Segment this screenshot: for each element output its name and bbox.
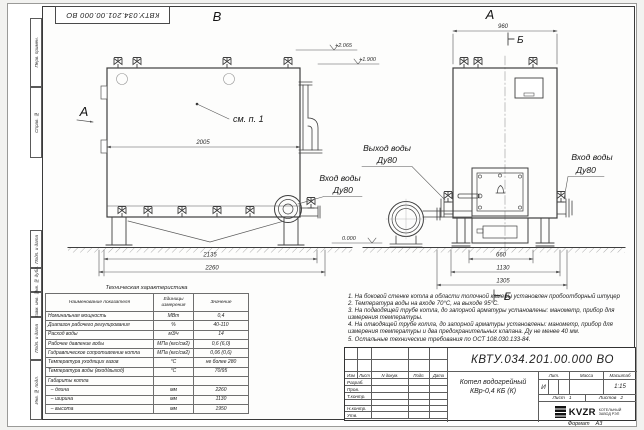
drain-valve: [246, 207, 254, 218]
param-units: %: [154, 321, 194, 330]
view-a-direction-arrow: [77, 120, 93, 122]
tb-cell: [372, 393, 409, 400]
blower-fan: [386, 199, 426, 247]
kvzr-coil-icon: [555, 406, 566, 418]
format-label: Формат: [568, 421, 590, 427]
tb-cell: [430, 412, 448, 419]
safety-valve: [460, 58, 468, 69]
mass-value: [569, 380, 603, 395]
outlet-leader: [362, 167, 445, 201]
side-tab-lower: [101, 140, 107, 153]
param-name: Диапазон рабочего регулирования: [46, 321, 154, 330]
product-title-line1: Котел водогрейный: [460, 379, 527, 388]
sheets-cell: Листов 2: [585, 395, 636, 402]
note-item: 4. На отводящей трубе котла, до запорной…: [348, 322, 635, 336]
ash-hopper-line: [128, 221, 284, 242]
param-units: мм: [154, 395, 194, 404]
inlet-b-label-line2: Ду80: [332, 185, 353, 195]
tb-cell: [372, 360, 409, 372]
furnace-door: [458, 168, 528, 216]
note-item: 3. На подводящей трубе котла, до запорно…: [348, 308, 635, 322]
param-name: Гидравлическое сопротивление котла: [46, 349, 154, 358]
dim-overall-width: 1305: [496, 279, 510, 285]
lifting-lug-left: [117, 74, 128, 85]
tb-cell: [409, 379, 430, 386]
tech-header-row: Наименование показателя Единицы измерени…: [46, 294, 249, 312]
lit-header: Лит.: [538, 372, 569, 380]
tb-cell: [558, 380, 569, 395]
tech-header-units: Единицы измерения: [154, 294, 194, 312]
view-b-side-view: В А: [68, 9, 382, 276]
param-name: – высота: [46, 404, 154, 413]
param-units: МПа (кгс/см2): [154, 349, 194, 358]
ground-hatch-right: [363, 248, 625, 253]
tb-cell: [430, 348, 448, 360]
param-units: м3/ч: [154, 330, 194, 339]
tb-cell: [345, 348, 358, 360]
tb-cell: [430, 386, 448, 393]
inlet-label-line2: Ду80: [575, 165, 596, 175]
param-value: 2260: [194, 386, 249, 395]
tb-cell: [409, 386, 430, 393]
note-item: 5. Остальные технические требования по О…: [348, 337, 635, 344]
control-panel: [515, 78, 543, 98]
inlet-label-line1: Вход воды: [571, 152, 613, 162]
param-name: Номинальная мощность: [46, 312, 154, 321]
dim-front-width: 960: [498, 24, 509, 30]
param-name: Температура уходящих газов: [46, 358, 154, 367]
dim-overall-length: 2260: [204, 266, 219, 272]
outlet-label-line1: Выход воды: [363, 143, 412, 153]
tech-table-title: Техническая характеристика: [45, 285, 248, 291]
inlet-stub-valve: [557, 192, 565, 203]
table-row: Температура уходящих газов°Сне более 280: [46, 358, 249, 367]
table-row: – ширинамм1130: [46, 395, 249, 404]
tb-cell: [409, 348, 430, 360]
param-units: °С: [154, 358, 194, 367]
tb-cell: [430, 379, 448, 386]
tb-col-list: Лист: [358, 372, 372, 379]
company-logo-cell: KVZR КОТЕЛЬНЫЙ ЗАВОД РЭП: [538, 402, 637, 422]
param-units: МПа (кгс/см2): [154, 339, 194, 348]
param-name: – длина: [46, 386, 154, 395]
tb-cell: [409, 393, 430, 400]
tb-cell: [548, 380, 558, 395]
tb-cell: [372, 386, 409, 393]
param-units: мм: [154, 386, 194, 395]
drawing-sheet: КВТУ.034.201.00.000 ВО Перв. примен. Спр…: [0, 0, 644, 430]
param-value: 70/95: [194, 367, 249, 376]
note-item: 1. На боковой стенке котла в области топ…: [348, 294, 635, 301]
tb-cell: [358, 360, 372, 372]
base-ash-box: [472, 218, 528, 243]
drain-valve: [178, 207, 186, 218]
company-name: КОТЕЛЬНЫЙ ЗАВОД РЭП: [599, 408, 622, 416]
tech-header-value: Значение: [194, 294, 249, 312]
dim-support-span: 2135: [202, 253, 217, 259]
param-value: не более 280: [194, 358, 249, 367]
tb-cell: [372, 379, 409, 386]
top-valve: [284, 58, 292, 69]
tb-cell: [345, 360, 358, 372]
tb-sig-tkontr: Т.контр.: [345, 393, 372, 400]
support-legs: [106, 217, 304, 248]
tb-cell: [430, 360, 448, 372]
tb-sig-prov: Пров.: [345, 386, 372, 393]
table-row: Расход водым3/ч14: [46, 330, 249, 339]
param-units: °С: [154, 367, 194, 376]
product-title-line2: КВр-0,4 КБ (К): [470, 388, 516, 397]
section-mark-letter: Б: [517, 35, 524, 46]
param-value: 1950: [194, 404, 249, 413]
view-a-direction-letter: А: [79, 104, 89, 119]
tb-col-podp: Подп.: [409, 372, 430, 379]
kvzr-logo-text: KVZR: [569, 407, 596, 418]
top-valve: [114, 58, 122, 69]
tb-cell: [409, 360, 430, 372]
format-label-row: Формат А3: [540, 421, 630, 427]
callout-leader: [197, 104, 229, 119]
side-tab-upper: [101, 86, 107, 99]
title-block-change-grid: Изм Лист N докум. Подп. Дата Разраб. Про…: [345, 348, 448, 419]
drain-valve: [144, 207, 152, 218]
tech-header-name: Наименование показателя: [46, 294, 154, 312]
table-row: – высотамм1950: [46, 404, 249, 413]
product-title: Котел водогрейный КВр-0,4 КБ (К): [447, 372, 538, 422]
param-units: мм: [154, 404, 194, 413]
rear-pipe-elbow: [299, 82, 322, 153]
top-valve: [223, 58, 231, 69]
param-name: Рабочее давление воды: [46, 339, 154, 348]
inlet-b-label-line1: Вход воды: [319, 173, 361, 183]
outlet-stub-valve: [444, 192, 452, 203]
tb-cell: [358, 348, 372, 360]
lifting-lug-right: [224, 74, 235, 85]
param-value: 0,06 (0,6): [194, 349, 249, 358]
sheet-label: Лист: [552, 396, 564, 401]
document-number: КВТУ.034.201.00.000 ВО: [447, 348, 637, 372]
callout-text: см. п. 1: [233, 114, 264, 124]
table-row: Гидравлическое сопротивление котлаМПа (к…: [46, 349, 249, 358]
tb-col-docnum: N докум.: [372, 372, 409, 379]
top-valve: [529, 58, 537, 69]
sheets-label: Листов: [599, 396, 616, 401]
scale-value: 1:15: [603, 380, 636, 395]
tb-cell: [372, 348, 409, 360]
view-a-front-view: А Б: [362, 7, 625, 303]
stub-valve: [307, 198, 315, 209]
tech-table: Наименование показателя Единицы измерени…: [45, 293, 249, 414]
tb-sig-utv: Утв.: [345, 412, 372, 419]
drain-valve: [118, 207, 126, 218]
title-block: Изм Лист N докум. Подп. Дата Разраб. Про…: [344, 347, 636, 421]
dim-mid-width: 1130: [497, 266, 511, 272]
table-row: – длинамм2260: [46, 386, 249, 395]
tb-col-izm: Изм: [345, 372, 358, 379]
tb-cell: [409, 412, 430, 419]
format-value: А3: [596, 421, 603, 427]
lit-value: И: [538, 380, 548, 395]
mass-header: Масса: [569, 372, 603, 380]
technical-notes: 1. На боковой стенке котла в области топ…: [348, 294, 635, 344]
elevation-mid: +1.900: [359, 57, 377, 63]
param-units: [154, 377, 194, 386]
elevation-top: +2.065: [335, 43, 353, 49]
table-row: Диапазон рабочего регулирования%40-110: [46, 321, 249, 330]
param-name: Расход воды: [46, 330, 154, 339]
drain-valve: [213, 207, 221, 218]
param-units: МВт: [154, 312, 194, 321]
param-value: 14: [194, 330, 249, 339]
sheets-value: 2: [620, 396, 623, 401]
elevation-zero: 0.000: [342, 236, 357, 242]
param-name: Температура воды (вход/выход): [46, 367, 154, 376]
param-name: – ширина: [46, 395, 154, 404]
sheet-cell: Лист 1: [538, 395, 585, 402]
scale-header: Масштаб: [603, 372, 636, 380]
tb-col-data: Дата: [430, 372, 448, 379]
company-name-line2: ЗАВОД РЭП: [599, 412, 620, 416]
table-row: Номинальная мощностьМВт0,4: [46, 312, 249, 321]
table-row: Габариты котла: [46, 377, 249, 386]
outlet-label-line2: Ду80: [376, 155, 397, 165]
front-legs: [452, 218, 554, 246]
param-value: 0,6 (6,0): [194, 339, 249, 348]
sheet-value: 1: [569, 396, 572, 401]
inlet-flange: [275, 196, 302, 223]
table-row: Температура воды (вход/выход)°С70/95: [46, 367, 249, 376]
table-row: Рабочее давление водыМПа (кгс/см2)0,6 (6…: [46, 339, 249, 348]
section-mark-line: [508, 33, 514, 45]
inlet-leader: [564, 177, 604, 200]
param-value: 40-110: [194, 321, 249, 330]
param-name: Габариты котла: [46, 377, 154, 386]
param-value: 1130: [194, 395, 249, 404]
dim-body-length: 2005: [195, 140, 210, 146]
tb-sig-razrab: Разраб.: [345, 379, 372, 386]
param-value: 0,4: [194, 312, 249, 321]
dim-base-width: 660: [496, 253, 507, 259]
tb-cell: [372, 412, 409, 419]
view-a-letter: А: [485, 7, 495, 22]
top-valve: [133, 58, 141, 69]
view-b-letter: В: [213, 9, 222, 24]
safety-valve: [474, 58, 482, 69]
tb-cell: [430, 393, 448, 400]
param-value: [194, 377, 249, 386]
